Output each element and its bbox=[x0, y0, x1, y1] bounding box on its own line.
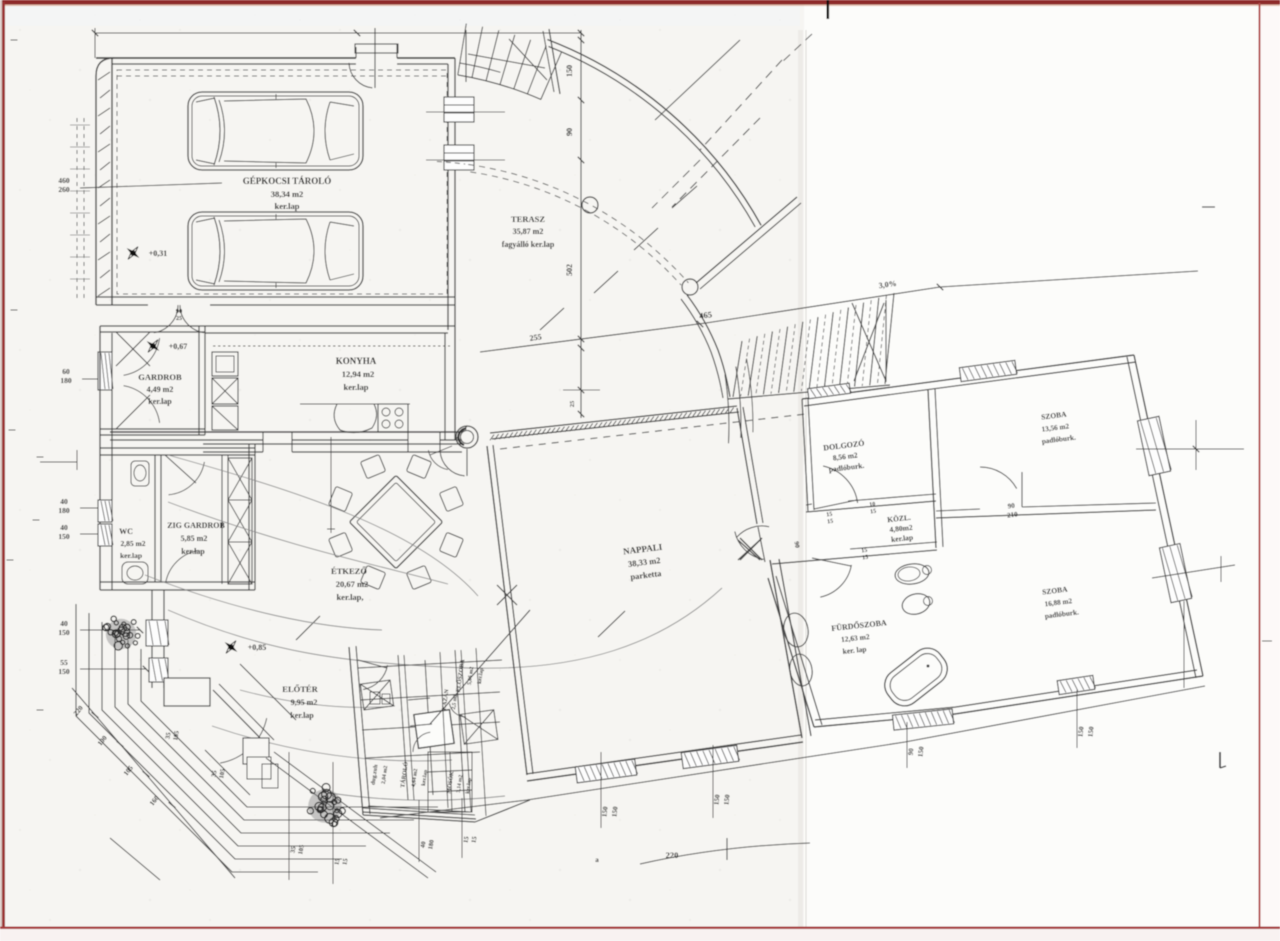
svg-text:150: 150 bbox=[722, 794, 731, 806]
svg-text:+0,67: +0,67 bbox=[169, 342, 188, 351]
svg-text:465: 465 bbox=[699, 309, 713, 321]
svg-text:a: a bbox=[595, 856, 599, 864]
svg-text:ker.lap: ker.lap bbox=[290, 711, 314, 720]
svg-text:5,85 m2: 5,85 m2 bbox=[181, 534, 208, 543]
svg-text:55: 55 bbox=[60, 658, 68, 667]
svg-text:150: 150 bbox=[712, 794, 721, 806]
svg-text:502: 502 bbox=[565, 264, 574, 276]
svg-text:150: 150 bbox=[58, 667, 70, 676]
svg-text:150: 150 bbox=[58, 532, 70, 541]
svg-text:ZIG GARDROB: ZIG GARDROB bbox=[167, 521, 225, 530]
svg-text:150: 150 bbox=[1086, 726, 1095, 738]
svg-text:220: 220 bbox=[666, 850, 679, 860]
svg-text:180: 180 bbox=[58, 506, 70, 515]
svg-text:GARDROB: GARDROB bbox=[138, 372, 182, 382]
svg-text:+0,31: +0,31 bbox=[149, 249, 168, 258]
svg-text:12,94 m2: 12,94 m2 bbox=[342, 369, 375, 379]
svg-text:ÉTKEZŐ: ÉTKEZŐ bbox=[331, 566, 367, 576]
svg-text:150: 150 bbox=[565, 65, 574, 77]
svg-text:WC: WC bbox=[119, 527, 133, 536]
svg-text:15: 15 bbox=[826, 512, 833, 519]
svg-text:4,49 m2: 4,49 m2 bbox=[147, 385, 174, 394]
svg-text:+0,85: +0,85 bbox=[248, 643, 267, 652]
svg-text:150: 150 bbox=[916, 746, 925, 758]
svg-text:38,34 m2: 38,34 m2 bbox=[271, 189, 304, 199]
svg-text:460: 460 bbox=[58, 176, 70, 185]
svg-text:15: 15 bbox=[862, 555, 869, 562]
svg-text:40: 40 bbox=[60, 523, 68, 532]
svg-text:fagyálló ker.lap: fagyálló ker.lap bbox=[502, 240, 555, 249]
svg-text:GÉPKOCSI TÁROLÓ: GÉPKOCSI TÁROLÓ bbox=[243, 176, 332, 186]
svg-text:25: 25 bbox=[569, 400, 576, 407]
svg-text:35,87 m2: 35,87 m2 bbox=[513, 227, 544, 236]
svg-text:ker.lap,: ker.lap, bbox=[336, 592, 363, 602]
svg-text:90: 90 bbox=[792, 541, 800, 549]
svg-text:90: 90 bbox=[176, 308, 183, 315]
svg-text:TERASZ: TERASZ bbox=[511, 214, 545, 224]
svg-text:260: 260 bbox=[58, 185, 70, 194]
svg-text:150: 150 bbox=[1076, 726, 1085, 738]
svg-text:ker.lap: ker.lap bbox=[344, 382, 369, 392]
svg-text:ker.lap: ker.lap bbox=[275, 201, 300, 211]
svg-text:ELŐTÉR: ELŐTÉR bbox=[282, 684, 318, 694]
svg-text:15: 15 bbox=[870, 509, 877, 516]
svg-text:40: 40 bbox=[60, 497, 68, 506]
svg-text:40: 40 bbox=[60, 619, 68, 628]
svg-text:25: 25 bbox=[176, 316, 182, 322]
svg-text:ker.lap: ker.lap bbox=[148, 397, 172, 406]
svg-text:2,85 m2: 2,85 m2 bbox=[121, 539, 146, 548]
svg-text:9,95 m2: 9,95 m2 bbox=[291, 698, 318, 707]
svg-text:180: 180 bbox=[60, 376, 72, 385]
svg-text:255: 255 bbox=[529, 332, 542, 343]
svg-text:15: 15 bbox=[861, 548, 868, 555]
svg-text:60: 60 bbox=[62, 367, 70, 376]
svg-text:210: 210 bbox=[1007, 510, 1019, 519]
svg-text:10: 10 bbox=[869, 502, 876, 509]
svg-text:ker.lap: ker.lap bbox=[120, 551, 142, 560]
svg-text:150: 150 bbox=[610, 806, 619, 818]
svg-text:KONYHA: KONYHA bbox=[336, 356, 377, 366]
svg-text:ker.lap: ker.lap bbox=[181, 547, 205, 556]
svg-text:40: 40 bbox=[420, 841, 428, 849]
svg-text:90: 90 bbox=[565, 128, 574, 136]
svg-text:20,67 m2: 20,67 m2 bbox=[336, 579, 369, 589]
svg-text:150: 150 bbox=[600, 806, 609, 818]
svg-text:15: 15 bbox=[827, 519, 834, 526]
svg-text:150: 150 bbox=[58, 628, 70, 637]
